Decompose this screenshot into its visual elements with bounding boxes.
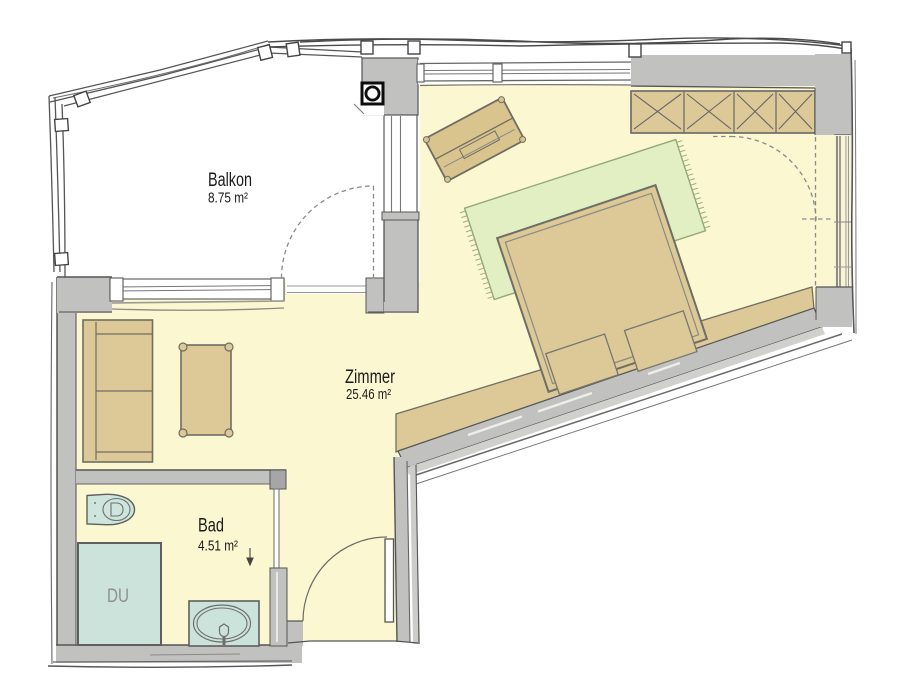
svg-text:Zimmer: Zimmer [345, 367, 396, 388]
svg-text:Bad: Bad [198, 516, 224, 537]
svg-text:25.46 m²: 25.46 m² [346, 387, 391, 403]
svg-text:Balkon: Balkon [208, 170, 252, 191]
svg-text:DU: DU [107, 586, 129, 607]
svg-text:4.51 m²: 4.51 m² [198, 539, 238, 555]
svg-text:8.75 m²: 8.75 m² [208, 191, 248, 207]
